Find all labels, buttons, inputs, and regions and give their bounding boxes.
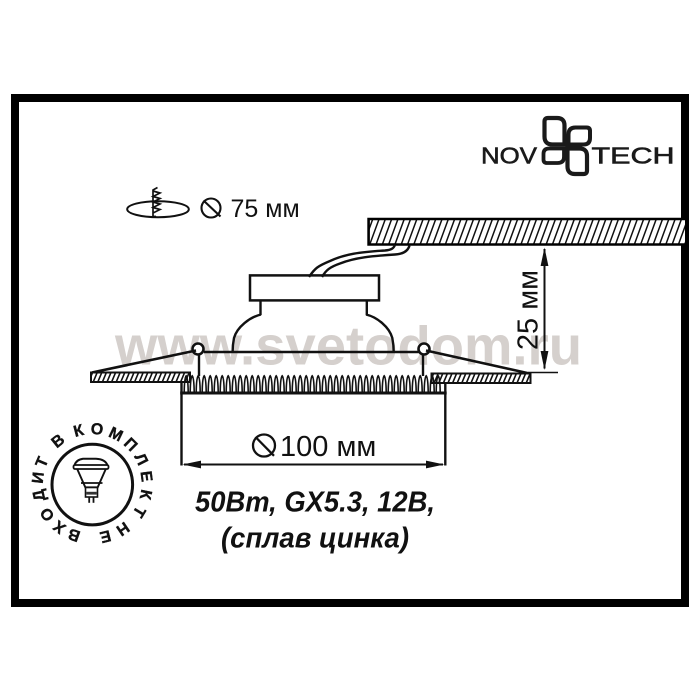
svg-text:NOV: NOV — [481, 143, 537, 169]
svg-text:50Вт, GX5.3, 12В,: 50Вт, GX5.3, 12В, — [195, 487, 435, 519]
svg-text:О: О — [90, 421, 104, 439]
svg-text:75 мм: 75 мм — [231, 195, 300, 223]
svg-text:TECH: TECH — [592, 143, 675, 169]
svg-text:(сплав цинка): (сплав цинка) — [221, 523, 409, 555]
svg-text:100 мм: 100 мм — [280, 431, 376, 463]
svg-text:И: И — [30, 471, 48, 484]
svg-text:25 мм: 25 мм — [513, 270, 545, 350]
